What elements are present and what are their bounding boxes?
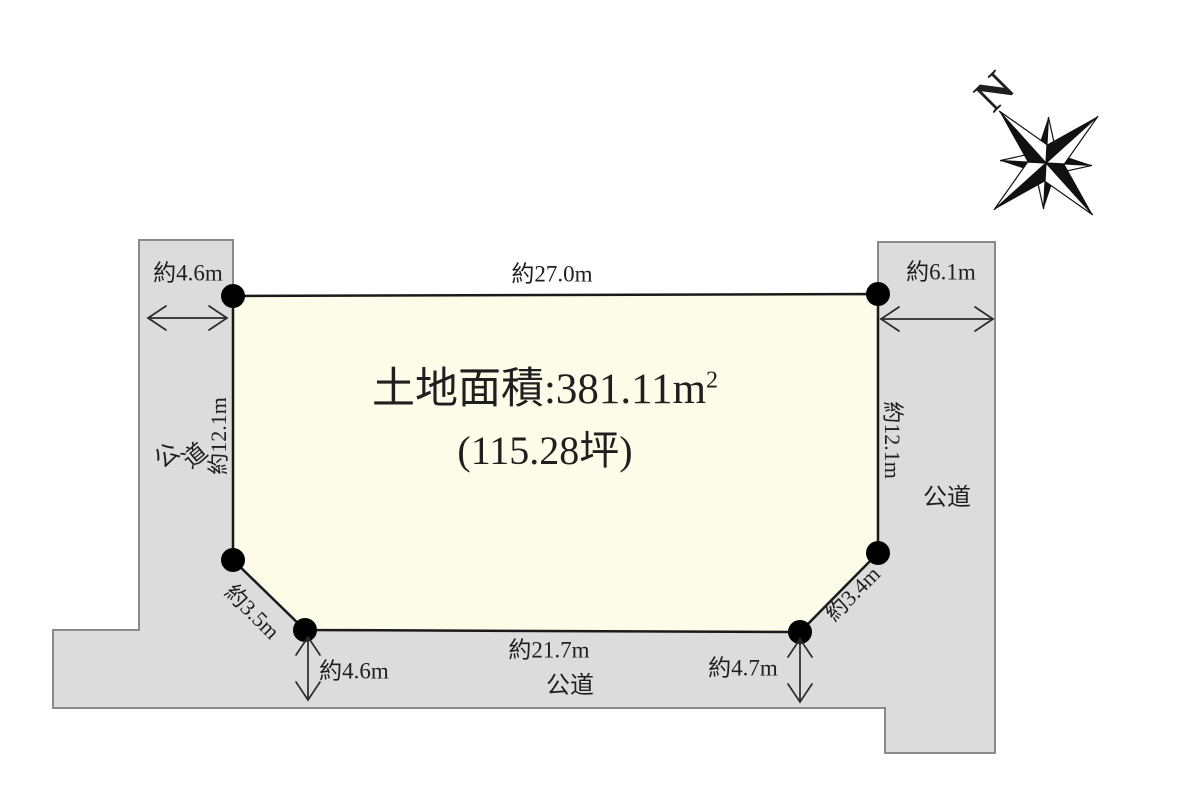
corner-dot bbox=[866, 282, 890, 306]
land-area-title: 土地面積:381.11m2 (115.28坪) bbox=[372, 354, 718, 476]
dim-east-road-width: 約6.1m bbox=[906, 261, 976, 284]
land-area-line2: (115.28坪) bbox=[372, 418, 718, 476]
corner-dot bbox=[866, 541, 890, 565]
dim-south-road-width-east: 約4.7m bbox=[708, 657, 778, 680]
land-plot-diagram: N 約4.6m 約27.0m 約6.1m 約12.1m 約12.1m 約3.5m… bbox=[0, 0, 1200, 791]
corner-dot bbox=[221, 548, 245, 572]
road-label-south: 公道 bbox=[546, 674, 594, 698]
road-label-west: 公道 bbox=[155, 443, 211, 467]
dim-south-edge: 約21.7m bbox=[508, 639, 589, 662]
dim-south-road-width-west: 約4.6m bbox=[319, 660, 389, 683]
dim-west-edge: 約12.1m bbox=[208, 397, 230, 475]
road-label-east: 公道 bbox=[923, 486, 971, 510]
corner-dot bbox=[221, 284, 245, 308]
corner-dot bbox=[293, 618, 317, 642]
dim-north-edge: 約27.0m bbox=[511, 263, 592, 286]
dim-west-road-width: 約4.6m bbox=[153, 262, 223, 285]
land-area-line1: 土地面積:381.11m2 bbox=[372, 354, 718, 416]
dim-east-edge: 約12.1m bbox=[881, 401, 903, 479]
